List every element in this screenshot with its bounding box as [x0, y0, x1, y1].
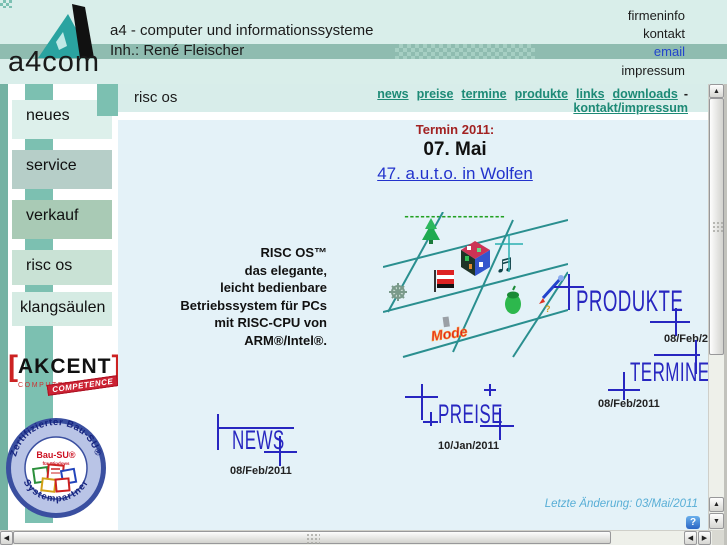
sidebar-item-klangsaeulen[interactable]: klangsäulen [12, 292, 112, 326]
header-link-impressum[interactable]: impressum [621, 63, 685, 78]
page-title: risc os [134, 89, 177, 106]
termin-date: 07. Mai [200, 139, 708, 161]
scroll-right-button[interactable]: ▶ [698, 531, 711, 545]
intro-line: leicht bedienbare [220, 280, 327, 295]
sidebar-item-service[interactable]: service [12, 150, 112, 189]
sidebar-item-verkauf[interactable]: verkauf [12, 200, 112, 239]
intro-line: ARM®/Intel®. [244, 333, 327, 348]
nav-link-links[interactable]: links [576, 87, 605, 101]
stamp-produkte-date: 08/Feb/2011 [664, 333, 708, 345]
scroll-left-button-right-end[interactable]: ◀ [684, 531, 697, 545]
akcent-bracket-open: [ [8, 350, 18, 383]
scroll-up-button-bottom[interactable]: ▲ [709, 497, 724, 512]
gear-icon [389, 283, 407, 301]
site-title: a4 - computer und informationssysteme [110, 22, 373, 39]
crosshair-mark [430, 412, 432, 426]
svg-text:?: ? [545, 304, 551, 314]
horizontal-scroll-thumb[interactable] [13, 531, 611, 544]
stamp-preise[interactable]: PREISE [438, 400, 514, 423]
flag-icon [435, 270, 454, 292]
header-link-firmeninfo[interactable]: firmeninfo [628, 8, 685, 23]
crosshair-mark [423, 421, 438, 423]
header-notch [97, 84, 118, 116]
pen-tool-icon: ? [539, 275, 564, 314]
browser-viewport: a4com a4 - computer und informationssyst… [0, 0, 727, 545]
header-band-checker [395, 44, 535, 59]
crosshair-mark [421, 384, 423, 420]
nav-link-kontakt-impressum[interactable]: kontakt/impressum [573, 101, 688, 115]
crosshair-mark [568, 274, 570, 310]
nav-link-news[interactable]: news [377, 87, 408, 101]
termin-block: Termin 2011: 07. Mai 47. a.u.t.o. in Wol… [200, 122, 708, 223]
sidebar-item-risc-os[interactable]: risc os [12, 250, 112, 285]
connector-strip [25, 189, 53, 200]
riscos-artwork: ♬ [383, 212, 568, 360]
crosshair-mark [608, 389, 640, 391]
sidebar: neues service verkauf risc os klangsäule… [8, 84, 118, 530]
crosshair-mark [484, 389, 496, 391]
stamp-news-date: 08/Feb/2011 [230, 465, 292, 477]
horizontal-scrollbar[interactable]: ◀ ◀ ▶ [0, 530, 712, 545]
page-header: a4com a4 - computer und informationssyst… [0, 0, 727, 84]
akcent-name: AKCENT [18, 355, 112, 378]
header-link-email[interactable]: email [654, 44, 685, 59]
nav-separator: - [684, 87, 688, 101]
termin-heading: Termin 2011: [200, 122, 708, 137]
intro-line: Betriebssystem für PCs [180, 298, 327, 313]
scroll-down-button[interactable]: ▼ [709, 513, 724, 529]
logo-text: a4com [8, 46, 100, 79]
crosshair-mark [650, 321, 690, 323]
vertical-scrollbar[interactable]: ▲ ▲ ▼ [708, 84, 724, 530]
last-modified-note: Letzte Änderung: 03/Mai/2011 [545, 498, 698, 510]
help-icon[interactable]: ? [686, 516, 700, 529]
nav-link-preise[interactable]: preise [417, 87, 454, 101]
intro-line: mit RISC-CPU von [214, 315, 327, 330]
music-clef-icon: ♬ [495, 234, 523, 278]
connector-strip [25, 239, 53, 250]
thumb-grip [306, 533, 320, 544]
connector-strip [25, 139, 53, 150]
thumb-grip [712, 221, 723, 234]
stamp-preise-label[interactable]: PREISE [438, 400, 503, 431]
vertical-scroll-thumb[interactable] [709, 98, 724, 355]
stamp-produkte[interactable]: PRODUKTE [576, 284, 702, 310]
stamp-news-label[interactable]: NEWS [232, 426, 285, 457]
stamp-preise-date: 10/Jan/2011 [438, 440, 499, 452]
crosshair-mark [217, 414, 219, 450]
stamp-termine-date: 08/Feb/2011 [598, 398, 660, 410]
akcent-logo: [AKCENT]® COMPUTERPARTNER COMPETENCE [8, 350, 118, 402]
intro-line: RISC OS™ [261, 245, 327, 260]
nav-link-termine[interactable]: termine [461, 87, 506, 101]
content-nav: newspreisetermineproduktelinksdownloads-… [268, 87, 688, 115]
riscos-intro-text: RISC OS™ das elegante, leicht bedienbare… [145, 244, 327, 349]
badge-center-name: Bau-SU® [36, 450, 76, 460]
crosshair-mark [654, 354, 700, 356]
svg-text:♬: ♬ [495, 248, 521, 278]
stamp-termine-label[interactable]: TERMINE [630, 358, 708, 389]
stamp-news[interactable]: NEWS [232, 426, 294, 449]
acorn-icon [505, 286, 521, 314]
stamp-produkte-label[interactable]: PRODUKTE [576, 284, 683, 319]
main-content: risc os newspreisetermineproduktelinksdo… [118, 84, 708, 530]
crosshair-mark [623, 372, 625, 400]
scroll-left-button[interactable]: ◀ [0, 531, 13, 545]
stamp-termine[interactable]: TERMINE [630, 358, 708, 381]
site-owner: Inh.: René Fleischer [110, 42, 244, 59]
crosshair-mark [405, 396, 438, 398]
mode-logo: Mode [429, 314, 469, 344]
connector-strip [25, 285, 53, 292]
scroll-up-button[interactable]: ▲ [709, 84, 724, 98]
termin-link[interactable]: 47. a.u.t.o. in Wolfen [377, 164, 533, 184]
intro-line: das elegante, [245, 263, 327, 278]
header-link-kontakt[interactable]: kontakt [643, 26, 685, 41]
nav-link-produkte[interactable]: produkte [515, 87, 568, 101]
corner-checker [0, 0, 12, 8]
nav-link-downloads[interactable]: downloads [613, 87, 678, 101]
connector-strip [25, 84, 53, 100]
bausu-badge: Zertifizierter Bau-SU® Systempartner Bau… [4, 415, 108, 521]
